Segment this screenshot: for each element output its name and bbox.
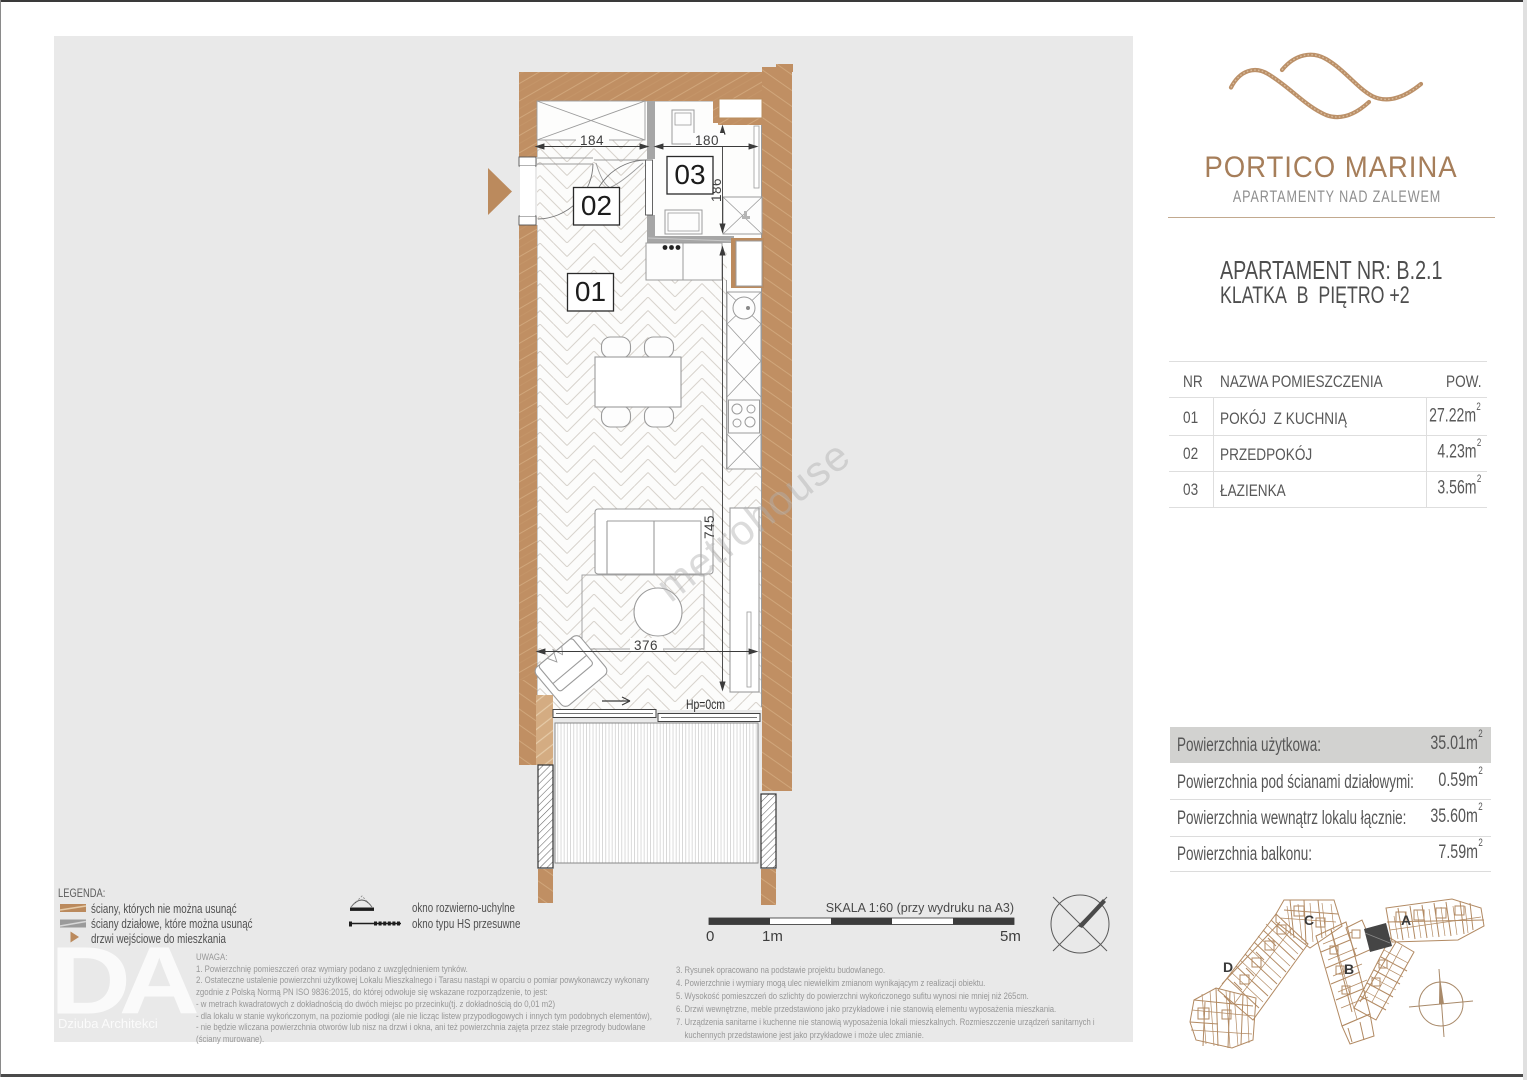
svg-text:C: C bbox=[1304, 912, 1314, 928]
svg-text:A: A bbox=[1401, 912, 1411, 928]
svg-text:03: 03 bbox=[674, 159, 705, 190]
svg-text:D: D bbox=[1223, 959, 1233, 975]
svg-text:02: 02 bbox=[581, 190, 612, 221]
svg-text:184: 184 bbox=[580, 133, 604, 148]
svg-text:376: 376 bbox=[634, 638, 658, 653]
svg-text:Hp=0cm: Hp=0cm bbox=[686, 697, 725, 712]
svg-text:180: 180 bbox=[695, 133, 719, 148]
svg-text:B: B bbox=[1344, 961, 1354, 977]
svg-text:01: 01 bbox=[575, 276, 606, 307]
